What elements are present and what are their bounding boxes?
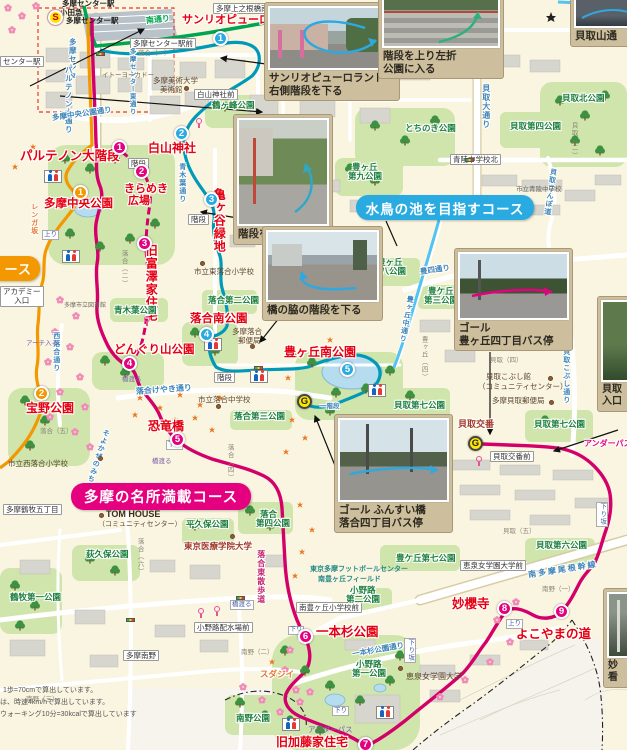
poi-dot [216,404,221,409]
road-label: 西落合通り [52,332,60,372]
road-label: レンガ坂 [30,203,38,235]
district-label: 落合（二） [120,250,127,288]
park-label: 第一公園 [352,669,386,678]
poi-museum: 美術館 [160,86,183,94]
banner-pink-course: 多摩の名所満載コース [71,483,251,510]
sign-line: アカデミー [3,287,41,296]
toilet-icon [250,370,268,383]
park-label: 貝取第四公園 [510,122,561,131]
traffic-signal-icon [126,618,135,622]
poi-dot [200,261,205,266]
route-note: 下り坂 [404,638,416,663]
banner-orange-course-partial: ース [0,256,40,281]
map-note: ウォーキング10分=30kcalで算出しています [0,711,137,719]
map-note: は、時速4km/hで算出しています。 [0,699,109,707]
toilet-icon [368,384,386,397]
caption-line: 入口 [602,396,627,408]
photo-inset-goal-toyogaoka: ゴール豊ヶ丘四丁目バス停 [454,248,573,351]
poi-yokoyama: よこやまの道 [516,628,591,642]
sign-line: 入口 [3,296,41,305]
traffic-signal-icon [254,366,263,370]
photo-inset-stairs-up: 階段を上がる [233,114,333,245]
poi-school: 市立落合中学校 [198,396,251,404]
orange-course-point-2: 2 [34,386,49,401]
park-label: 貝取第六公園 [536,541,587,550]
caption-line: ゴール [459,322,568,335]
caption-line: 妙 [608,660,627,672]
flower-spot-icon [196,118,202,124]
stairs-photo [382,0,500,48]
intersection-sign: アカデミー 入口 [0,286,44,307]
poi-dot [99,513,104,518]
poi-dot [549,400,554,405]
flower-spot-icon [476,456,482,462]
poi-kirameki: きらめき [124,183,168,195]
flower-spot-icon [144,316,150,322]
toilet-icon [282,718,300,731]
pink-course-point-9: 9 [554,604,569,619]
traffic-signal-icon [96,52,105,56]
district-label: 落合（六） [136,538,143,576]
intersection-sign: 青陵中学校北 [450,154,501,165]
kaitori-entrance-photo [601,300,627,382]
route-note: 上り [42,230,59,240]
photo-inset-myoo-sign: 妙看 [603,588,627,688]
poi-post-office: 郵便局 [238,337,261,345]
walking-course-map: サンリオピューロランド右側階段を下る 階段を上り左折公園に入る 階段を上がる 橋… [0,0,627,750]
poi-post-office: 多摩落合 [232,328,262,336]
blue-course-point-5: 5 [340,362,355,377]
bridge-sign: 多摩上之根橋南 [213,3,272,14]
park-label: 鶴ヶ峰公園 [212,101,255,110]
district-label: 南野（一） [542,586,575,593]
park-label: 第三公園 [424,296,458,305]
goal-toyogaoka-photo [458,252,569,320]
route-note: アーチ入る [26,340,58,347]
route-note: アンダーパス [308,726,353,734]
poi-school: 市立東落合小学校 [194,268,254,276]
park-label: 第二公園 [346,595,380,604]
goal-marker-toyogaoka: G [468,436,483,451]
poi-football-center: 東京多摩フットボールセンター [310,566,408,574]
district-label: 落合（四） [226,444,233,482]
intersection-sign: 多摩鶴牧五丁目 [3,504,62,515]
pink-course-point-8: 8 [497,601,512,616]
intersection-sign: 多摩センター駅前 [130,38,196,49]
caption-line: 看 [608,672,627,684]
poi-myoo: 妙櫻寺 [452,598,490,612]
park-label: 平久保公園 [186,520,229,529]
photo-inset-kaitori-entrance: 貝取入口 [597,296,627,412]
flower-spot-icon [214,606,220,612]
toilet-icon [62,250,80,263]
route-note: アンダーパス [584,440,627,449]
intersection-sign: 貝取交番前 [490,451,534,462]
blue-course-point-1: 1 [213,31,228,46]
station-label: 多摩センター駅 [66,17,119,25]
park-label: 第四公園 [256,519,290,528]
poi-hakusan: 白山神社 [148,142,196,155]
intersection-sign: 恵泉女学園大学前 [460,560,526,571]
poi-dot [250,344,255,349]
poi-dot [548,376,553,381]
caption-line: 落合四丁目バス停 [339,517,448,530]
photo-inset-bridge-side: 橋の脇の階段を下る [262,226,383,321]
park-label: 青木葉公園 [114,306,157,315]
bridge-photo [266,230,379,302]
caption-line: サンリオピューロランド [269,72,395,85]
poi-football-center: 南豊ヶ丘フィールド [318,576,381,584]
pink-course-point-1: 1 [112,140,127,155]
poi-ochiai-minami: 落合南公園 [190,313,248,326]
road-label: 落合東散歩道 [256,550,265,604]
stairs-sign: 階段 [214,372,235,383]
blue-course-point-4: 4 [199,327,214,342]
stairs-up-photo [237,118,329,226]
sanrio-photo [268,6,396,70]
park-label: 南野公園 [236,714,270,723]
poi-takarano: 宝野公園 [26,402,74,415]
start-marker: S [48,10,63,25]
poi-museum: 多摩美術大学 [153,77,198,85]
park-label: 荻久保公園 [86,550,129,559]
poi-donguri: どんぐり山公園 [114,344,195,357]
poi-post-office: 多摩貝取郵便局 [492,397,545,405]
route-note: 下り [332,706,349,716]
photo-inset-goal-funsui: ゴール ふんすい橋落合四丁目バス停 [334,414,453,533]
caption-line: 橋の脇の階段を下る [267,304,378,317]
district-label: 豊ヶ丘（四） [420,336,427,381]
route-note: 下り坂 [596,502,608,527]
road-label: 貝取大通り [481,84,490,129]
poi-university: 恵泉女学園大学 [406,673,462,682]
caption-line: 豊ヶ丘四丁目バス停 [459,335,568,348]
park-label: 貝取北公園 [562,94,605,103]
poi-tom-house: （コミュニティセンター） [98,521,182,529]
station-label-cut: センター駅 [0,56,44,67]
park-label: 鶴牧第一公園 [10,593,61,602]
kaitoriyama-photo [574,0,627,28]
poi-dot [398,666,403,671]
poi-tom-house: TOM HOUSE [106,510,160,520]
caption-line: 貝取山通 [575,30,627,43]
flower-spot-icon [198,608,204,614]
caption-line: ゴール ふんすい橋 [339,504,448,517]
road-label: パルテノン大通り [64,66,72,134]
poi-ipponsugi: 一本杉公園 [316,626,379,640]
blue-course-point-3: 3 [204,192,219,207]
road-label: 多摩センター東通り [128,48,135,116]
intersection-sign: 多摩南野 [123,650,159,661]
park-label: 貝取第七公園 [394,401,445,410]
toilet-icon [376,706,394,719]
pink-course-point-3: 3 [137,236,152,251]
route-note: 橋渡る [122,376,142,383]
poi-tree-spot: スダジイ [260,670,294,679]
toilet-icon [44,170,62,183]
caption-line: 階段を上り左折 [383,50,499,63]
road-label: 貝取こぶし通り [562,348,570,404]
map-note: 1歩=70cmで算出しています。 [3,687,97,695]
poi-school: 市立西落合小学校 [8,460,68,468]
route-note: 一階段 [320,403,340,410]
pink-course-point-2: 2 [134,164,149,179]
blue-course-point-2: 2 [174,126,189,141]
photo-inset-kaitoriyama: 貝取山通 [570,0,627,47]
poi-store: イトーヨーカドー [102,72,154,79]
poi-parthenon: パルテノン大階段 [20,150,120,164]
photo-inset-stairs-left: 階段を上り左折公園に入る [378,0,504,79]
district-label: 落合（一） [138,50,171,57]
poi-dot [98,456,103,461]
poi-community-center: （コミュニティセンター） [478,383,568,391]
park-label: 第九公園 [348,172,382,181]
poi-kirameki: 広場 [128,195,150,207]
pink-course-point-6: 6 [298,629,313,644]
stairs-sign: 階段 [188,214,209,225]
intersection-sign: 小野路配水場前 [194,622,253,633]
poi-library: 多摩市立図書館 [64,303,106,310]
poi-school: 市立青陵中学校 [516,186,562,193]
goal-funsui-photo [338,418,449,502]
pink-course-point-5: 5 [170,432,185,447]
traffic-signal-icon [236,596,245,600]
route-note: 橋渡る [230,600,254,610]
district-label: 南野（二） [241,649,274,656]
banner-blue-course: 水鳥の池を目指すコース [356,195,534,220]
poi-toyogaoka-minami: 豊ヶ丘南公園 [284,346,356,359]
district-label: 貝取（二） [570,122,577,160]
caption-line: 公園に入る [383,63,499,76]
pink-course-point-7: 7 [358,737,373,750]
road-label: 青木葉通り [178,163,186,203]
park-label: 落合第三公園 [234,412,285,421]
intersection-sign: 白山神社前 [194,89,238,100]
caption-line: 貝取 [602,384,627,396]
district-label: 貝取（四） [490,357,523,364]
station-label: 多摩センター駅 [62,0,115,8]
poi-community-center: 貝取こぶし館 [486,373,531,381]
park-label: 落合第二公園 [208,296,259,305]
caption-line: 右側階段を下る [269,85,395,98]
poi-koban: 貝取交番 [458,420,494,430]
district-label: 貝取（五） [503,528,536,535]
route-note: 上り [506,619,523,629]
poi-dot [230,534,235,539]
traffic-signal-icon [465,158,474,162]
district-label: 落合（五） [40,428,73,435]
goal-marker-funsui: G [297,394,312,409]
poi-kato: 旧加藤家住宅 [276,736,348,749]
park-label: とちのき公園 [405,124,456,133]
route-note: 橋渡る [152,458,172,465]
poi-dot [184,86,189,91]
pink-course-point-4: 4 [122,356,137,371]
myoo-sign-photo [607,592,627,658]
poi-university: 東京医療学院大学 [184,542,252,551]
park-label: 貝取第七公園 [534,420,585,429]
park-label: 豊ケ丘第七公園 [396,554,456,563]
orange-course-point-1: 1 [73,185,88,200]
